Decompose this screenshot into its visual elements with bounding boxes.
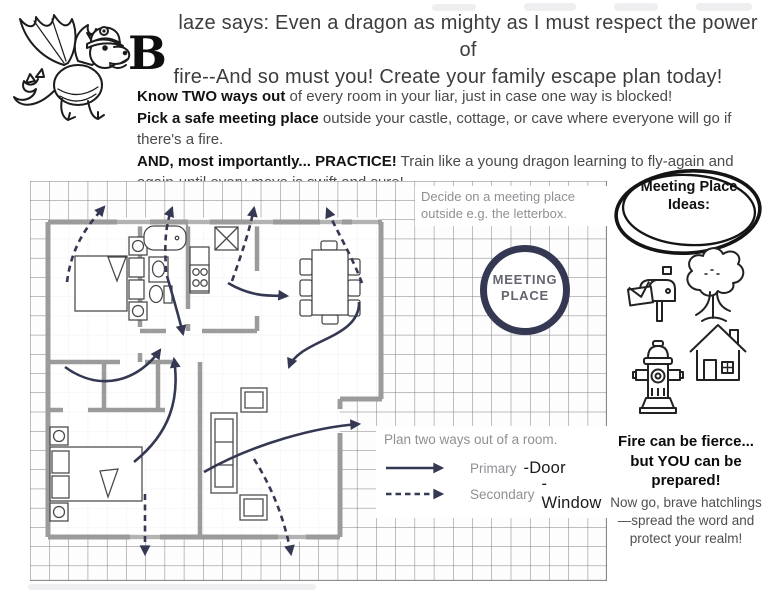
meeting-place-label: MEETING PLACE: [483, 272, 567, 304]
drop-cap-b: B: [128, 38, 167, 68]
fire-hydrant-icon: [632, 340, 684, 414]
house-icon: [688, 320, 748, 384]
closing-regular-text: Now go, brave hatchlings—spread the word…: [606, 494, 766, 548]
floor-plan-area: Decide on a meeting place outside e.g. t…: [30, 181, 607, 581]
legend: Plan two ways out of a room. Primary -Do…: [376, 426, 607, 518]
dashed-arrow-icon: [384, 487, 458, 501]
closing-message: Fire can be fierce... but YOU can be pre…: [606, 432, 766, 548]
solid-arrow-icon: [384, 461, 458, 475]
legend-secondary-label: Secondary: [470, 487, 535, 502]
closing-bold-text: Fire can be fierce... but YOU can be pre…: [606, 432, 766, 491]
instruction-item: Know TWO ways out of every room in your …: [137, 86, 763, 108]
legend-secondary-row: Secondary -Window: [384, 481, 607, 507]
floor-plan-drawing: [30, 181, 607, 581]
legend-secondary-target: -Window: [542, 475, 607, 513]
ideas-title: Meeting Place Ideas:: [640, 178, 738, 214]
meeting-place-note: Decide on a meeting place outside e.g. t…: [415, 186, 607, 226]
legend-title: Plan two ways out of a room.: [384, 432, 607, 447]
headline-line1: laze says: Even a dragon as mighty as I …: [168, 10, 768, 64]
worksheet-page: B laze says: Even a dragon as mighty as …: [0, 0, 768, 593]
legend-primary-label: Primary: [470, 461, 517, 476]
headline: B laze says: Even a dragon as mighty as …: [128, 10, 768, 91]
tree-icon: [680, 244, 748, 322]
mailbox-icon: [626, 266, 680, 324]
scan-smudge: [28, 584, 316, 590]
instruction-item: Pick a safe meeting place outside your c…: [137, 108, 763, 151]
dragon-mascot-illustration: [8, 6, 138, 130]
